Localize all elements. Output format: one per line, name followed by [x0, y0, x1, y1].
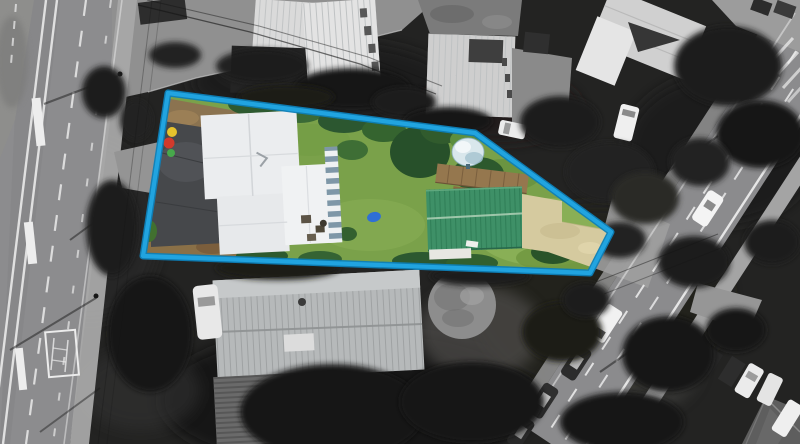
- gray-tree-14: [82, 66, 126, 118]
- toy-yellow: [167, 127, 177, 137]
- roof-c-dot-1: [502, 58, 507, 66]
- gray-tree-1: [216, 49, 308, 83]
- gray-tree-16: [400, 362, 544, 442]
- roof-b-vent-1: [360, 8, 368, 17]
- white-deck-strip: [429, 248, 471, 259]
- gray-tree-22: [706, 308, 766, 352]
- bottom-roof-patch: [284, 333, 315, 352]
- water-tank-highlight: [455, 141, 471, 153]
- gray-tree-25: [149, 42, 201, 68]
- water-tank-shade: [465, 152, 483, 164]
- bush-right-of-house: [336, 140, 368, 160]
- power-pole-2: [94, 294, 99, 299]
- bottom-white-car-windshield: [197, 296, 215, 307]
- roof-c-dot-2: [505, 74, 510, 82]
- deck-chair-1: [301, 215, 311, 224]
- roof-b-vent-2: [364, 26, 372, 35]
- gray-tree-11: [670, 138, 730, 186]
- round-tank-texture-2: [460, 287, 484, 305]
- toy-red: [164, 138, 175, 149]
- gray-tree-24: [744, 220, 800, 264]
- gray-tree-9: [674, 26, 782, 106]
- toy-green: [167, 149, 175, 157]
- gray-tree-21: [622, 316, 714, 392]
- gray-tree-6: [520, 96, 600, 148]
- dirt-mottle-1: [430, 5, 474, 23]
- aerial-photo: [0, 0, 800, 444]
- gray-tree-12: [86, 180, 138, 276]
- roof-c-dot-3: [507, 90, 512, 98]
- concrete-texture-1: [540, 223, 580, 239]
- roof-b-vent-3: [368, 44, 376, 53]
- gray-tree-28: [562, 282, 610, 318]
- water-tank-ladder: [466, 164, 470, 169]
- round-tank-texture-3: [442, 309, 474, 327]
- bottom-roof-vent: [298, 298, 306, 306]
- roof-c-inset: [468, 39, 503, 63]
- dirt-mottle-2: [482, 15, 512, 29]
- gray-tree-8: [611, 172, 679, 224]
- dark-car-top: [523, 32, 550, 55]
- aerial-photo-canvas: [0, 0, 800, 444]
- deck-chair-3: [307, 234, 316, 241]
